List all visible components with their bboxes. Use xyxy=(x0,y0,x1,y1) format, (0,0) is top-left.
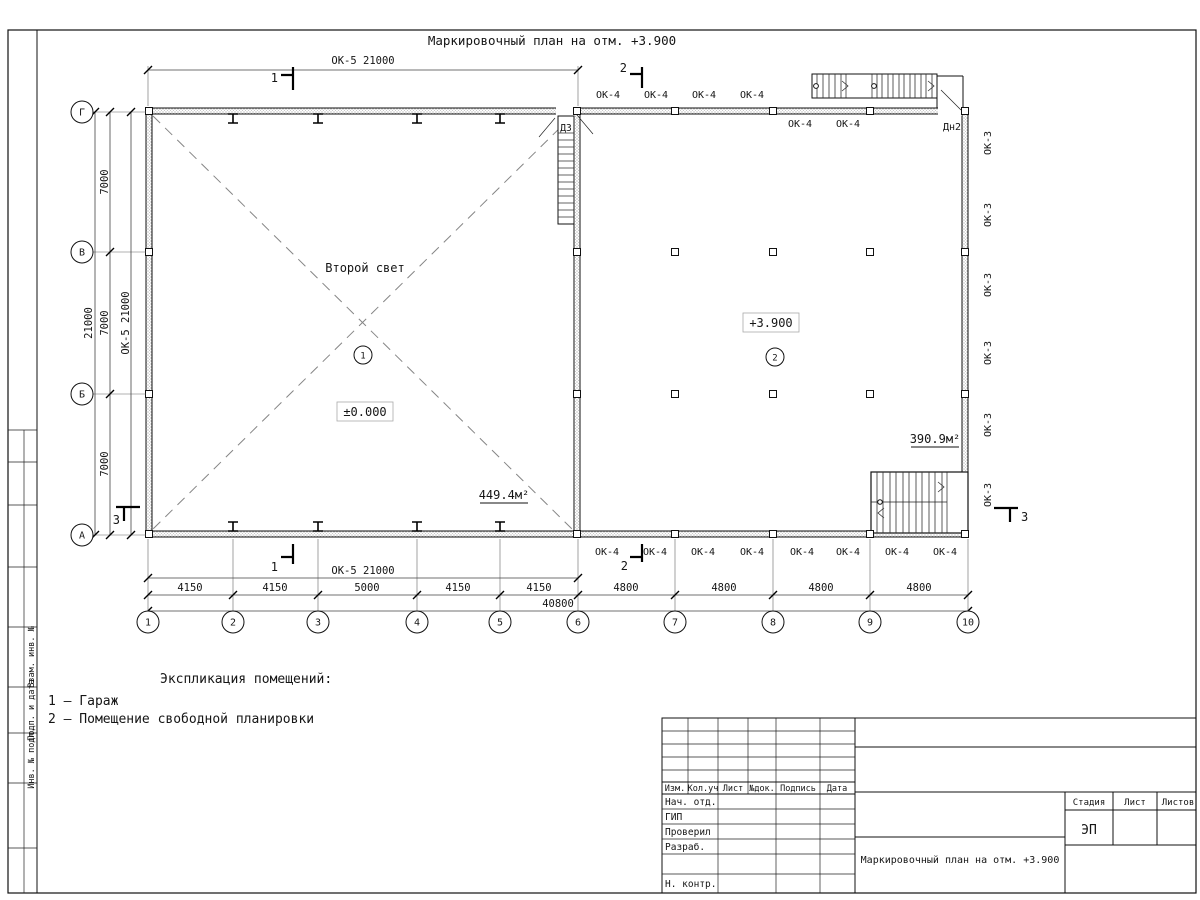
dim-ok5-left: ОК-5 21000 xyxy=(120,291,132,354)
sheet-background xyxy=(0,0,1200,900)
ok4-mark: ОК-4 xyxy=(596,90,620,101)
tb-header-podpis: Подпись xyxy=(780,784,816,794)
ok3-mark: ОК-3 xyxy=(983,273,994,297)
ok4-mark: ОК-4 xyxy=(643,547,667,558)
dim-ok5-top: ОК-5 21000 xyxy=(331,55,394,67)
tb-staff-gip: ГИП xyxy=(665,812,682,823)
ok3-mark: ОК-3 xyxy=(983,203,994,227)
ok4-mark: ОК-4 xyxy=(740,90,764,101)
section-3-right: 3 xyxy=(1021,510,1028,524)
dim-b6: 4800 xyxy=(613,582,638,594)
ok4-mark: ОК-4 xyxy=(885,547,909,558)
ok4-mark: ОК-4 xyxy=(644,90,668,101)
room1-label: Второй свет xyxy=(325,261,404,275)
dim-b3: 5000 xyxy=(354,582,379,594)
ok4-mark: ОК-4 xyxy=(595,547,619,558)
tb-stage-label: Стадия xyxy=(1073,798,1106,808)
tb-header-izm: Изм. xyxy=(665,784,685,794)
dim-b2: 4150 xyxy=(262,582,287,594)
ok4-mark: ОК-4 xyxy=(790,547,814,558)
grid-col-6: 6 xyxy=(575,618,581,629)
dim-bottom-total: 40800 xyxy=(542,598,574,610)
tb-sheets-label: Листов xyxy=(1162,798,1195,808)
ok3-mark: ОК-3 xyxy=(983,341,994,365)
ok3-mark: ОК-3 xyxy=(983,483,994,507)
grid-row-g: Г xyxy=(79,108,85,119)
room1-number: 1 xyxy=(360,352,365,362)
grid-col-3: 3 xyxy=(315,618,321,629)
room2-number: 2 xyxy=(772,354,777,364)
d3-mark: ДЗ xyxy=(560,123,571,134)
dim-b8: 4800 xyxy=(808,582,833,594)
tb-sheet-label: Лист xyxy=(1124,798,1146,808)
ok4-mark: ОК-4 xyxy=(933,547,957,558)
ok4-mark: ОК-4 xyxy=(788,119,812,130)
tb-staff-razrab: Разраб. xyxy=(665,842,705,853)
room1-area: 449.4м² xyxy=(479,488,530,502)
legend-heading: Экспликация помещений: xyxy=(160,672,332,687)
legend-item-2: 2 – Помещение свободной планировки xyxy=(48,712,314,727)
tb-staff-nachotd: Нач. отд. xyxy=(665,797,716,808)
room1-elevation: ±0.000 xyxy=(343,405,386,419)
legend-item-1: 1 – Гараж xyxy=(48,694,119,709)
grid-row-a: А xyxy=(79,531,85,542)
tb-stage-value: ЭП xyxy=(1081,823,1097,838)
dim-b4: 4150 xyxy=(445,582,470,594)
room2-area: 390.9м² xyxy=(910,432,961,446)
ok3-mark: ОК-3 xyxy=(983,131,994,155)
section-2-bottom: 2 xyxy=(621,559,628,573)
wall-bottom xyxy=(148,531,968,537)
stamp-label-inv: Инв. № подл. xyxy=(27,727,37,788)
dim-left-seg-1: 7000 xyxy=(99,169,111,194)
tb-staff-nkontr: Н. контр. xyxy=(665,879,716,890)
dim-b7: 4800 xyxy=(711,582,736,594)
tb-header-koluch: Кол.уч xyxy=(688,784,719,794)
tb-doc-title: Маркировочный план на отм. +3.900 xyxy=(861,854,1060,866)
dim-b9: 4800 xyxy=(906,582,931,594)
grid-col-10: 10 xyxy=(962,618,974,629)
wall-left xyxy=(146,108,152,537)
ok3-mark: ОК-3 xyxy=(983,413,994,437)
grid-col-7: 7 xyxy=(672,618,678,629)
dim-left-seg-2: 7000 xyxy=(99,310,111,335)
section-2-top: 2 xyxy=(620,61,627,75)
grid-col-8: 8 xyxy=(770,618,776,629)
tb-staff-proveril: Проверил xyxy=(665,827,711,838)
ok4-mark: ОК-4 xyxy=(692,90,716,101)
grid-col-2: 2 xyxy=(230,618,236,629)
floor-plan-svg: Взам. инв. № Подп. и дата Инв. № подл. М… xyxy=(0,0,1200,900)
tb-header-data: Дата xyxy=(827,784,847,794)
section-1-bottom: 1 xyxy=(271,560,278,574)
grid-col-5: 5 xyxy=(497,618,503,629)
grid-col-1: 1 xyxy=(145,618,151,629)
tb-header-ndok: №док. xyxy=(748,784,775,794)
wall-middle xyxy=(574,114,580,531)
dim-left-total: 21000 xyxy=(83,307,95,339)
grid-row-b: Б xyxy=(79,390,85,401)
grid-row-v: В xyxy=(79,248,85,259)
room2-elevation: +3.900 xyxy=(749,316,792,330)
drawing-title: Маркировочный план на отм. +3.900 xyxy=(428,33,676,48)
dn2-mark: Дн2 xyxy=(943,122,961,133)
dim-left-seg-3: 7000 xyxy=(99,451,111,476)
grid-col-9: 9 xyxy=(867,618,873,629)
dim-ok5-bottom: ОК-5 21000 xyxy=(331,565,394,577)
stamp-label-vzam: Взам. инв. № xyxy=(27,626,37,687)
tb-header-list: Лист xyxy=(723,784,743,794)
stair-internal-bottom-right xyxy=(871,472,968,533)
drawing-sheet: Взам. инв. № Подп. и дата Инв. № подл. М… xyxy=(0,0,1200,900)
dim-b1: 4150 xyxy=(177,582,202,594)
section-1-top: 1 xyxy=(271,71,278,85)
ok4-mark: ОК-4 xyxy=(691,547,715,558)
section-3-left: 3 xyxy=(113,513,120,527)
ok4-mark: ОК-4 xyxy=(836,547,860,558)
ok4-mark: ОК-4 xyxy=(740,547,764,558)
ok4-mark: ОК-4 xyxy=(836,119,860,130)
grid-col-4: 4 xyxy=(414,618,420,629)
dim-b5: 4150 xyxy=(526,582,551,594)
